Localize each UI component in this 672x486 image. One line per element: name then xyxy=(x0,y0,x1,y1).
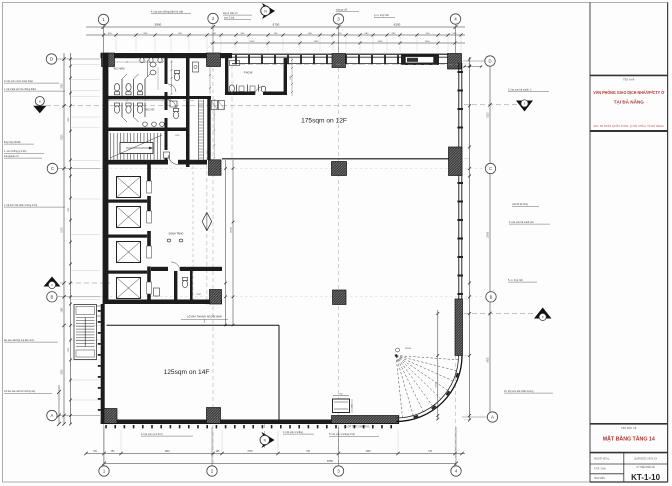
svg-text:C: C xyxy=(489,166,492,171)
svg-text:D: D xyxy=(50,57,53,62)
svg-text:21005: 21005 xyxy=(231,226,233,233)
svg-text:5330: 5330 xyxy=(62,134,64,140)
svg-text:MẶT BẰNG TẦNG 14: MẶT BẰNG TẦNG 14 xyxy=(603,435,655,443)
svg-text:R5900: R5900 xyxy=(405,348,412,350)
svg-text:5. m. thuỷ tinh: 5. m. thuỷ tinh xyxy=(508,279,524,282)
svg-text:mái đổ bê tông: mái đổ bê tông xyxy=(512,203,528,206)
svg-text:2725: 2725 xyxy=(247,451,253,453)
svg-text:lan can sắt hộp mạ kẽm sơn: lan can sắt hộp mạ kẽm sơn xyxy=(4,339,35,342)
svg-text:P.KT: P.KT xyxy=(175,135,180,137)
svg-text:1. lớp sơn xi măng: 1. lớp sơn xi măng xyxy=(283,431,304,434)
svg-text:WC NAM: WC NAM xyxy=(114,66,125,70)
svg-text:P.T.R. CHN.: P.T.R. CHN. xyxy=(594,469,607,471)
svg-text:HỌA VIÊN: HỌA VIÊN xyxy=(594,477,605,480)
svg-text:x. bả matit sơn lót chống thấm: x. bả matit sơn lót chống thấm xyxy=(4,88,36,91)
svg-text:trát granito t.h: trát granito t.h xyxy=(4,155,19,158)
svg-text:thép hộp 30x60: thép hộp 30x60 xyxy=(4,141,21,144)
svg-text:sơn 2 lớp: sơn 2 lớp xyxy=(224,17,235,20)
svg-text:1500: 1500 xyxy=(378,41,384,43)
svg-text:4460: 4460 xyxy=(365,451,371,453)
svg-text:175sqm on 12F: 175sqm on 12F xyxy=(301,117,347,124)
svg-text:10. lớp sơn trát chân tường: 10. lớp sơn trát chân tường xyxy=(504,390,534,393)
svg-text:2. lớp sơn bả matit t.h: 2. lớp sơn bả matit t.h xyxy=(508,88,532,91)
svg-text:4. lớp sơn chống thấm bê mặt: 4. lớp sơn chống thấm bê mặt xyxy=(151,11,183,14)
svg-text:5330: 5330 xyxy=(488,112,490,118)
svg-text:9835: 9835 xyxy=(488,357,490,363)
svg-text:A: A xyxy=(51,413,54,418)
svg-text:mái gờ chỉ: mái gờ chỉ xyxy=(336,8,348,11)
svg-text:D: D xyxy=(488,59,491,64)
svg-text:QUẢN ĐỐC XXXX.XX: QUẢN ĐỐC XXXX.XX xyxy=(634,458,657,461)
svg-text:C: C xyxy=(51,166,54,171)
svg-text:g. m. thuỷ tinh: g. m. thuỷ tinh xyxy=(374,14,390,17)
svg-text:+LỚP TRÁT GRANIT Đ.: +LỚP TRÁT GRANIT Đ. xyxy=(345,425,370,428)
svg-text:TẠI ĐÀ NẴNG: TẠI ĐÀ NẴNG xyxy=(614,99,645,105)
svg-text:9175: 9175 xyxy=(62,227,64,233)
svg-text:10590: 10590 xyxy=(488,231,490,238)
svg-text:KÝ HIỆU BẢN VẼ: KÝ HIỆU BẢN VẼ xyxy=(636,466,655,469)
svg-text:Ô.KT: Ô.KT xyxy=(197,293,203,296)
svg-text:5. lớp sơn xi măng 2 lớp: 5. lớp sơn xi măng 2 lớp xyxy=(329,433,356,436)
svg-text:B: B xyxy=(51,294,54,299)
svg-text:A: A xyxy=(491,415,494,420)
svg-text:3000: 3000 xyxy=(62,369,64,375)
svg-text:8750: 8750 xyxy=(327,459,333,463)
svg-text:Đ/C: 58 TRẦN QUỐC TOẢN, Q.HẢI: Đ/C: 58 TRẦN QUỐC TOẢN, Q.HẢI CHÂU, TP Đ… xyxy=(594,125,664,128)
svg-text:6700: 6700 xyxy=(273,23,280,27)
svg-text:5900: 5900 xyxy=(155,23,162,27)
svg-text:xây đ. trần t.h: xây đ. trần t.h xyxy=(223,12,238,15)
svg-text:1/2 lan can sắt 1/2 tường xây: 1/2 lan can sắt 1/2 tường xây xyxy=(4,390,36,393)
svg-text:1500: 1500 xyxy=(250,41,256,43)
svg-text:x. sơn chống gỉ 2 lớp: x. sơn chống gỉ 2 lớp xyxy=(4,150,27,153)
svg-text:2390: 2390 xyxy=(62,83,64,89)
svg-text:B: B xyxy=(490,294,493,299)
svg-text:4. lớp sơn bả matit sơn: 4. lớp sơn bả matit sơn xyxy=(509,221,534,224)
svg-text:NGƯỜI VẼ A.L.: NGƯỜI VẼ A.L. xyxy=(594,458,611,461)
svg-text:2. lớp sơn nước hoàn thiện: 2. lớp sơn nước hoàn thiện xyxy=(4,80,34,83)
svg-text:KT-1-10: KT-1-10 xyxy=(631,473,660,482)
svg-text:1540: 1540 xyxy=(164,451,170,453)
svg-text:1345: 1345 xyxy=(314,41,320,43)
svg-text:VĂN PHÒNG GIAO DỊCH NHÀ/VP/CTY: VĂN PHÒNG GIAO DỊCH NHÀ/VP/CTY Ở xyxy=(593,88,664,95)
svg-text:125sqm on 14F: 125sqm on 14F xyxy=(164,369,210,376)
svg-text:4. lớp sơn xe ô tô t.h: 4. lớp sơn xe ô tô t.h xyxy=(141,433,164,436)
svg-text:1240: 1240 xyxy=(62,307,64,313)
svg-text:6200: 6200 xyxy=(394,23,401,27)
svg-text:1500: 1500 xyxy=(425,41,431,43)
svg-text:x. bả sơn trát chân tường 2 lớ: x. bả sơn trát chân tường 2 lớp xyxy=(4,204,38,207)
